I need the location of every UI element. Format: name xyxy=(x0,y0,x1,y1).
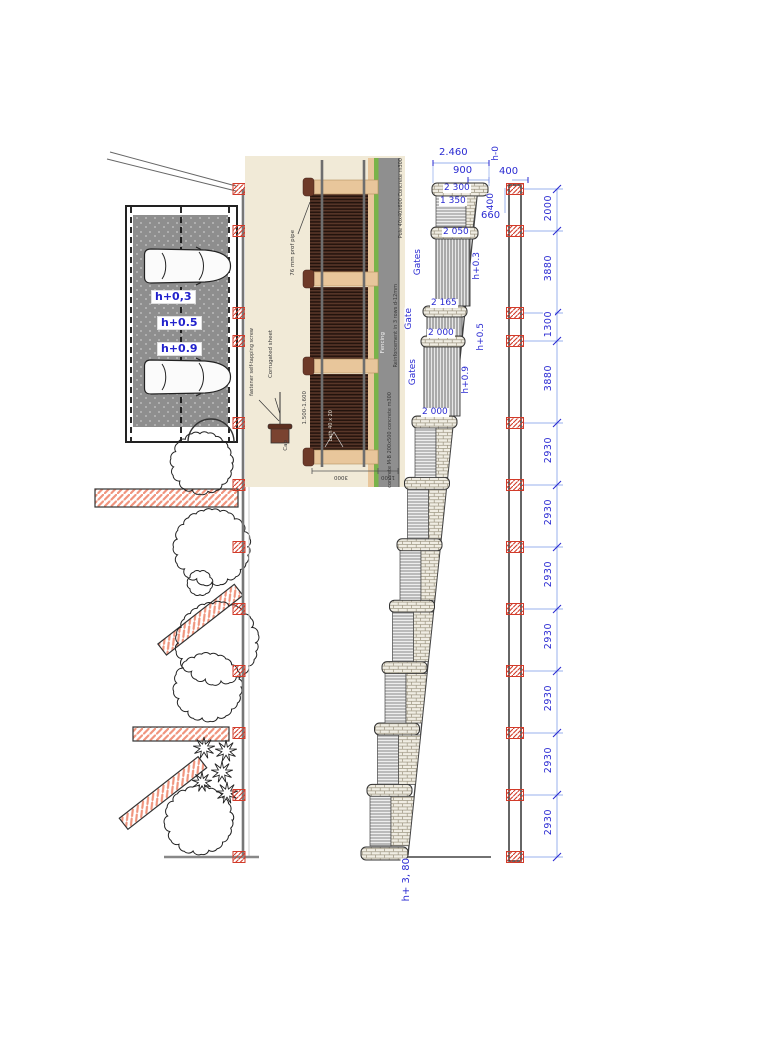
panel-dim-2165: 2 165 xyxy=(430,299,458,308)
detail-cap-label: Cap xyxy=(284,440,290,451)
panel-dim-2050: 2 050 xyxy=(442,228,470,237)
panel-dim-2000-b: 2 000 xyxy=(421,408,449,417)
elevation-900-dim: 900 xyxy=(452,166,473,177)
level-label-h09: h+0.9 xyxy=(461,366,472,394)
detail-depth-dim: 1500 xyxy=(381,473,395,479)
strip-400-top-dim: 400 xyxy=(498,167,519,178)
chain-dim-2000: 2000 xyxy=(543,195,555,221)
chain-dim-3880-b: 3880 xyxy=(543,365,555,391)
chain-dim-1300: 1300 xyxy=(543,311,555,337)
detail-reinforcement-label: Reinforcement in 3 rows d-12mm xyxy=(394,284,399,367)
level-label-h03: h+0.3 xyxy=(472,252,483,280)
chain-dim-2930-1: 2930 xyxy=(543,437,555,463)
chain-dim-2930-3: 2930 xyxy=(543,561,555,587)
detail-corrugated-sheet-label: Corrugated sheet xyxy=(269,330,275,378)
detail-pole-label: Pole 40x40x600 Concrete m300 xyxy=(399,158,404,238)
detail-width-dim: 3000 xyxy=(334,473,348,479)
chain-dim-2930-5: 2930 xyxy=(543,685,555,711)
section-label-gates-1: Gates xyxy=(413,249,424,275)
chain-dim-2930-6: 2930 xyxy=(543,747,555,773)
plan-level-label-3: h+0.9 xyxy=(157,342,202,356)
section-label-gates-2: Gates xyxy=(408,359,419,385)
strip-400-side-dim: 400 xyxy=(486,193,497,210)
level-label-h05: h+0.5 xyxy=(476,323,487,351)
chain-dim-2930-4: 2930 xyxy=(543,623,555,649)
section-label-gate: Gate xyxy=(404,308,415,330)
elevation-total-width-dim: 2.460 xyxy=(438,148,469,159)
panel-dim-2300: 2 300 xyxy=(443,184,471,193)
chain-dim-2930-2: 2930 xyxy=(543,499,555,525)
panel-dim-2000-a: 2 000 xyxy=(427,329,455,338)
level-label-h0: h-0 xyxy=(491,146,502,161)
chain-dim-3880-a: 3880 xyxy=(543,255,555,281)
plan-level-label-1: h+0,3 xyxy=(151,290,196,304)
detail-fastener-label: fastener self-tapping screw xyxy=(250,328,255,396)
elevation-660-dim: 660 xyxy=(480,211,501,222)
detail-height-range-dim: 1.500-1.600 xyxy=(303,391,309,424)
linework-canvas xyxy=(0,0,777,1041)
drawing-sheet: h+0,3 h+0.5 h+0.9 2.460 900 400 h-0 400 … xyxy=(0,0,777,1041)
plan-level-label-2: h+0.5 xyxy=(157,316,202,330)
detail-lath-label: Lath 40 x 20 xyxy=(329,410,334,441)
detail-pipe-label: 76 mm prof pipe xyxy=(291,230,297,276)
detail-fencing-label: Fencing xyxy=(381,332,387,353)
panel-dim-1350: 1 350 xyxy=(439,197,467,206)
level-label-h380: h+ 3, 80 xyxy=(401,858,414,901)
chain-dim-2930-7: 2930 xyxy=(543,809,555,835)
